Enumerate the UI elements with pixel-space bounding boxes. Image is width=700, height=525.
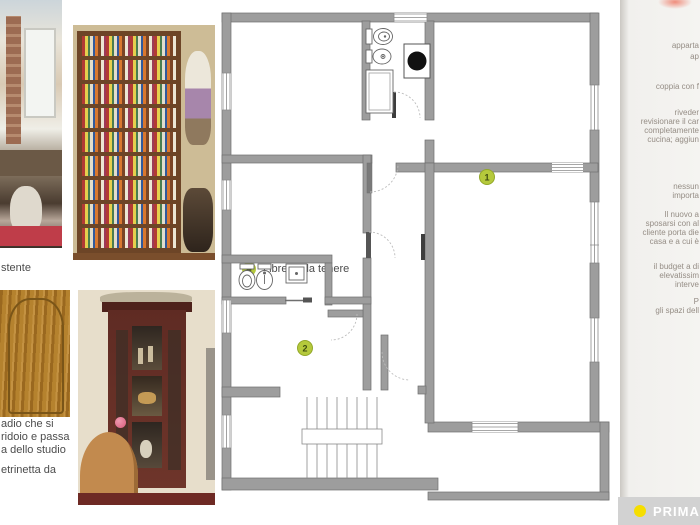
- presentation-page: stente 4 Libreria da tenere adio che si …: [0, 0, 700, 525]
- svg-text:2: 2: [302, 344, 307, 354]
- footer-bar: PRIMA: [618, 497, 700, 525]
- edge-text-line: nessun: [673, 182, 699, 191]
- sliding-door: [285, 298, 312, 303]
- edge-text-line: importa: [672, 191, 699, 200]
- boiler-icon: [404, 44, 430, 78]
- shower-icon: [366, 70, 393, 113]
- next-page-edge[interactable]: apparta ap coppia con f riveder revision…: [620, 0, 700, 497]
- floor-plan: 1 2: [0, 0, 700, 525]
- red-title-fragment: [658, 0, 692, 9]
- yellow-dot-icon: [634, 505, 646, 517]
- edge-text-line: il budget a di: [654, 262, 699, 271]
- edge-text-line: casa e a cui è: [650, 237, 699, 246]
- walls: [222, 13, 609, 500]
- edge-text-line: sposarsi con al: [646, 219, 699, 228]
- doors: [331, 92, 425, 380]
- edge-text-line: riveder: [675, 108, 699, 117]
- edge-text-line: Il nuovo a: [664, 210, 699, 219]
- bidet-icon: [366, 49, 391, 64]
- edge-text-line: gli spazi dell: [655, 306, 699, 315]
- edge-text-line: coppia con f: [656, 82, 699, 91]
- edge-text-line: completamente: [644, 126, 699, 135]
- sink-icon: [286, 264, 307, 283]
- edge-text-line: P: [694, 297, 699, 306]
- edge-text-line: apparta: [672, 41, 699, 50]
- edge-text-line: revisionare il car: [641, 117, 699, 126]
- edge-text-line: ap: [690, 52, 699, 61]
- toilet-icon: [366, 29, 393, 45]
- prima-label: PRIMA: [653, 504, 700, 519]
- edge-text-line: cliente porta die: [643, 228, 699, 237]
- edge-text-line: elevatissim: [659, 271, 699, 280]
- marker-2: 2: [298, 341, 313, 356]
- edge-text-line: interve: [675, 280, 699, 289]
- edge-text-line: cucina; aggiun: [647, 135, 699, 144]
- staircase: [302, 397, 382, 478]
- toilet-icon: [239, 264, 255, 290]
- marker-1: 1: [480, 170, 495, 185]
- svg-text:1: 1: [484, 173, 489, 183]
- bidet-icon: [257, 264, 273, 290]
